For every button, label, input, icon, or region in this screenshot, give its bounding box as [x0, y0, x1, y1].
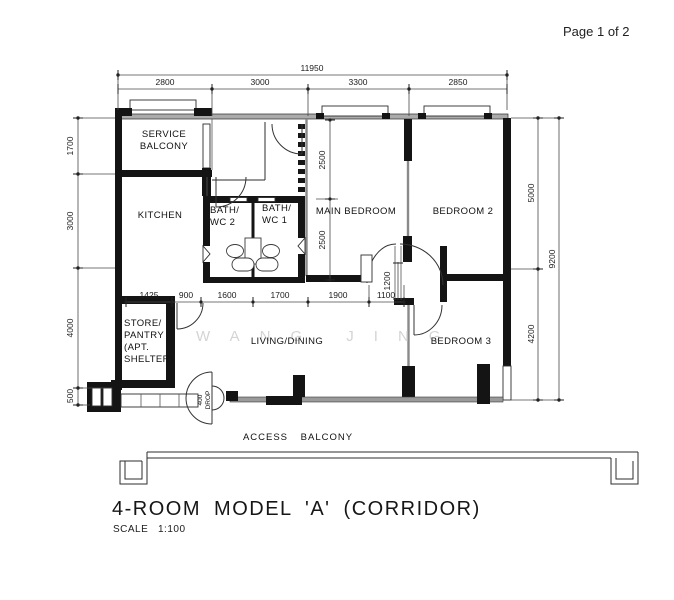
- store-door: [177, 303, 203, 329]
- wall-segment: [316, 113, 324, 119]
- dim-top-4: 2850: [449, 77, 468, 87]
- dim-top-3: 3300: [349, 77, 368, 87]
- bath-west-wall: [203, 203, 210, 246]
- wall-segment: [484, 113, 492, 119]
- right-exterior-wall: [503, 118, 511, 170]
- wall-column: [404, 119, 412, 161]
- left-exterior-wall: [115, 113, 122, 390]
- dim-mid-5: 1900: [329, 290, 348, 300]
- dim-mid-2: 900: [179, 290, 193, 300]
- bath-east-wall: [298, 203, 305, 238]
- wall-segment: [418, 113, 426, 119]
- label-access-balcony: ACCESS BALCONY: [243, 432, 353, 443]
- bath1-door-triangle: [298, 238, 305, 254]
- bedroom2-bedroom3-wall: [447, 274, 504, 281]
- wall-column: [403, 236, 412, 262]
- section-hook-left-inner: [125, 461, 142, 479]
- dim-mid-1: 1425: [140, 290, 159, 300]
- right-exterior-wall: [503, 170, 511, 280]
- dim-top-1: 2800: [156, 77, 175, 87]
- dim-mb-upper: 2500: [317, 150, 327, 169]
- door-stub: [361, 255, 372, 282]
- label-service-balcony-2: BALCONY: [140, 141, 188, 152]
- label-store-3: (APT.: [124, 342, 149, 353]
- watermark-text: WANG JING: [196, 328, 460, 345]
- bedroom-vestibule-arch: [361, 244, 443, 285]
- duct-opening: [92, 388, 101, 406]
- label-bath2-1: BATH/: [210, 205, 239, 216]
- dimensions-right: 5000 4200 9200: [511, 116, 564, 401]
- duct-opening: [103, 388, 112, 406]
- wall-segment: [202, 168, 211, 196]
- label-store-4: SHELTER): [124, 354, 173, 365]
- bedroom2-window-bay: [424, 106, 490, 116]
- dim-mid-3: 1600: [218, 290, 237, 300]
- drawing-title: 4-ROOM MODEL 'A' (CORRIDOR): [112, 498, 481, 520]
- dim-right-2: 4200: [526, 324, 536, 343]
- label-living-dining: LIVING/DINING: [251, 336, 323, 347]
- wall-column: [477, 364, 490, 404]
- entrance-wall-stub: [226, 391, 238, 401]
- label-drop-2: DROP: [205, 391, 212, 410]
- scale-label: SCALE: [113, 524, 148, 535]
- label-drop-1: 400: [197, 394, 204, 405]
- dim-top-2: 3000: [251, 77, 270, 87]
- toilet-bowl: [227, 245, 244, 258]
- label-main-bedroom: MAIN BEDROOM: [316, 206, 396, 217]
- main-bedroom-window-bay: [322, 106, 388, 116]
- floor-trap: [256, 258, 278, 271]
- service-balcony-kitchen-wall: [115, 170, 212, 177]
- right-wall-window: [503, 366, 511, 400]
- main-bedroom-south-wall: [306, 275, 367, 282]
- wall-segment: [382, 113, 390, 119]
- bath-window: [230, 198, 247, 202]
- wall-column: [293, 375, 305, 397]
- wall-segment: [194, 108, 212, 116]
- scale-value: 1:100: [158, 524, 186, 535]
- bath-window: [258, 198, 275, 202]
- dim-left-1: 1700: [65, 136, 75, 155]
- dim-door-width: 1200: [382, 271, 392, 290]
- dim-left-3: 4000: [65, 318, 75, 337]
- dim-left-4: 500: [65, 389, 75, 403]
- dim-mid-4: 1700: [271, 290, 290, 300]
- service-balcony-side-window: [203, 124, 210, 168]
- store-east-wall: [166, 296, 175, 388]
- label-bath2-2: WC 2: [210, 217, 235, 228]
- bath-top-wall: [203, 196, 305, 203]
- bath-east-wall: [298, 254, 305, 277]
- page-indicator: Page 1 of 2: [563, 24, 630, 39]
- bath-bottom-wall: [203, 277, 305, 283]
- label-bedroom2: BEDROOM 2: [433, 206, 494, 217]
- label-bedroom3: BEDROOM 3: [431, 336, 492, 347]
- label-kitchen: KITCHEN: [138, 210, 183, 221]
- label-bath1-1: BATH/: [262, 203, 291, 214]
- bathroom-fixtures: [227, 238, 280, 271]
- dim-mb-lower: 2500: [317, 230, 327, 249]
- label-bath1-2: WC 1: [262, 215, 287, 226]
- label-store-1: STORE/: [124, 318, 162, 329]
- bath2-door-triangle: [203, 246, 210, 262]
- wall-column: [266, 396, 302, 405]
- section-outline: [120, 452, 638, 484]
- dim-right-overall: 9200: [547, 249, 557, 268]
- label-store-2: PANTRY: [124, 330, 164, 341]
- dim-right-1: 5000: [526, 183, 536, 202]
- floor-trap: [232, 258, 254, 271]
- label-service-balcony-1: SERVICE: [142, 129, 186, 140]
- floor-plan-canvas: 11950 2800 3000 3300 2850 1700 3000 4000…: [0, 0, 674, 600]
- wall-column: [402, 366, 415, 402]
- dim-top-overall: 11950: [300, 63, 323, 73]
- dim-left-2: 3000: [65, 211, 75, 230]
- bath-west-wall: [203, 262, 210, 277]
- toilet-bowl: [263, 245, 280, 258]
- dimensions-left: 1700 3000 4000 500: [65, 116, 115, 406]
- right-exterior-wall: [503, 280, 511, 366]
- lobby-door: [272, 124, 302, 154]
- dim-mid-6: 1100: [377, 290, 396, 300]
- service-balcony-window-bay: [130, 100, 196, 110]
- section-hook-right-inner: [616, 458, 633, 479]
